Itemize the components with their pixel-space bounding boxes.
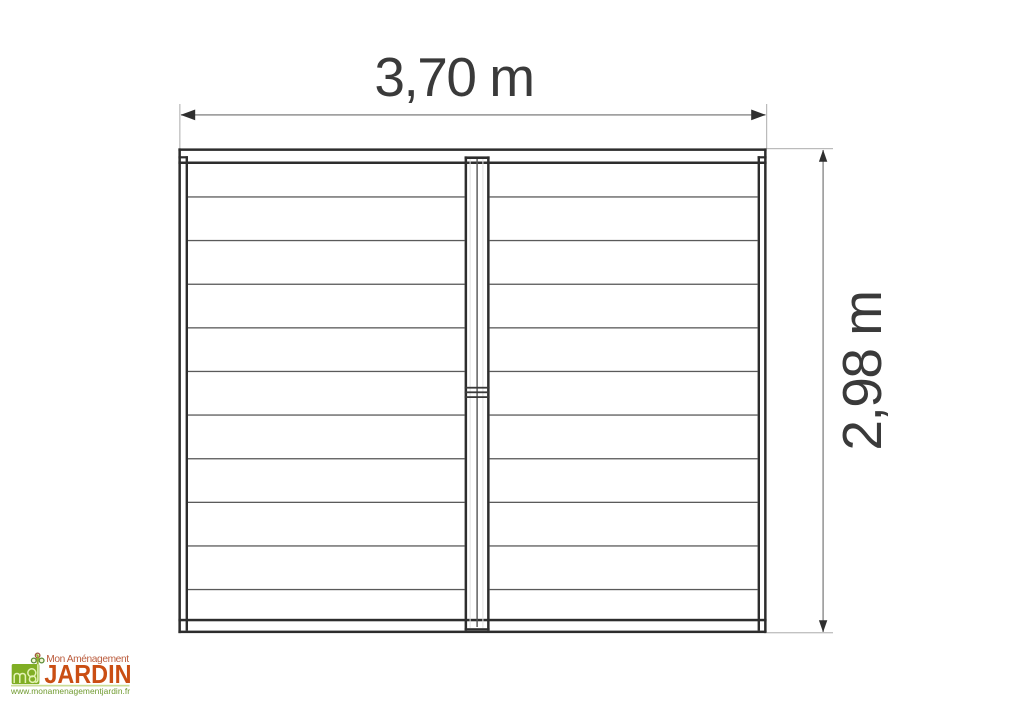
svg-text:www.monamenagementjardin.fr: www.monamenagementjardin.fr bbox=[10, 686, 130, 696]
svg-text:2,98 m: 2,98 m bbox=[831, 291, 893, 450]
svg-text:3,70 m: 3,70 m bbox=[374, 46, 533, 108]
